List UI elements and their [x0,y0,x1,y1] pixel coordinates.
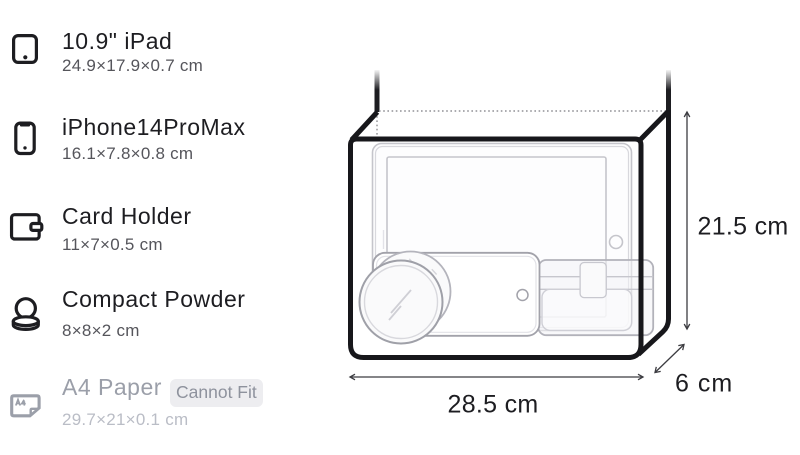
svg-text:6 cm: 6 cm [675,370,733,398]
svg-text:21.5 cm: 21.5 cm [698,213,789,241]
svg-text:28.5 cm: 28.5 cm [448,391,539,419]
